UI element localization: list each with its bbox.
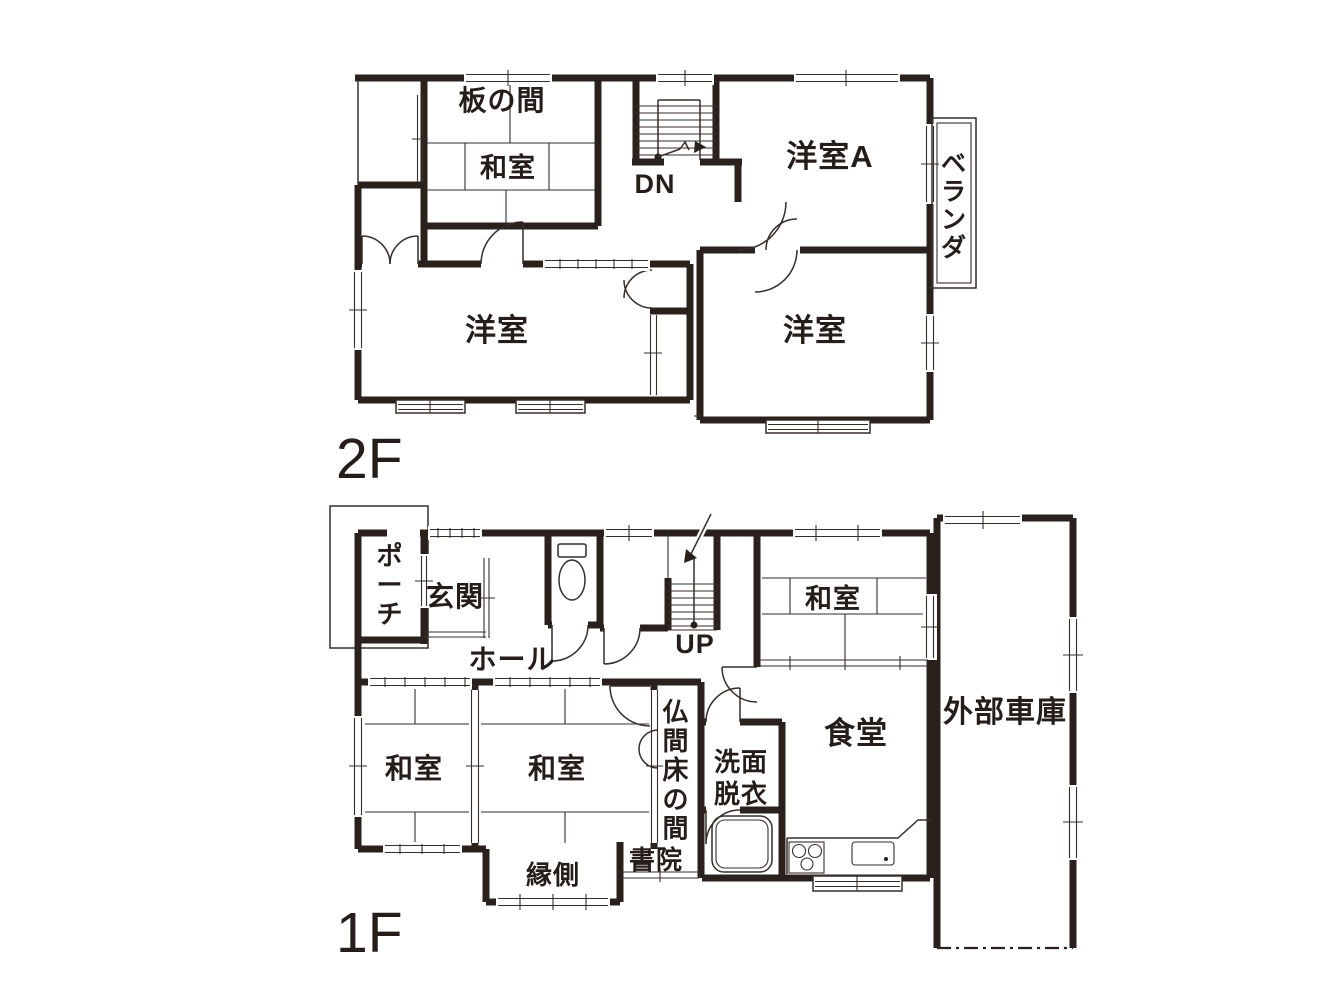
labels-2f: 板の間 和室 洋室A DN 洋室 洋室 ベランダ 2F xyxy=(336,85,967,491)
floor-plan-page: 板の間 和室 洋室A DN 洋室 洋室 ベランダ 2F xyxy=(0,0,1336,996)
fixtures-1f xyxy=(362,514,930,874)
room-label-hall-1f: ホール xyxy=(468,644,555,675)
stair-label-dn: DN xyxy=(635,169,676,199)
floor-2f: 板の間 和室 洋室A DN 洋室 洋室 ベランダ 2F xyxy=(336,70,976,491)
room-label-washroom-1: 洗面 xyxy=(714,747,768,777)
floor-label-2f: 2F xyxy=(336,427,403,491)
stairs-2f xyxy=(636,100,716,161)
kitchen-counter xyxy=(787,820,930,874)
room-label-dining: 食堂 xyxy=(824,716,888,751)
room-label-butsuma-tokonoma: 仏間床の間 xyxy=(662,697,689,843)
room-label-washitsu-sw1: 和室 xyxy=(385,752,443,784)
floor-1f: ポーチ 玄関 ホール UP 和室 食堂 外部車庫 洗面 脱衣 和室 和室 仏間床… xyxy=(330,506,1083,965)
floor-plan-drawing: 板の間 和室 洋室A DN 洋室 洋室 ベランダ 2F xyxy=(0,0,1336,996)
room-label-washitsu-sw2: 和室 xyxy=(528,752,586,784)
sink-icon xyxy=(852,842,894,865)
stair-label-up: UP xyxy=(675,629,715,659)
room-label-veranda: ベランダ xyxy=(941,150,967,262)
door-gap xyxy=(481,258,523,271)
floor-label-1f: 1F xyxy=(336,901,403,965)
room-label-youshitsu-a: 洋室A xyxy=(786,139,873,174)
room-label-washroom-2: 脱衣 xyxy=(714,779,768,809)
room-label-genkan: 玄関 xyxy=(426,580,484,612)
room-label-shoin: 書院 xyxy=(629,845,683,875)
room-label-engawa: 縁側 xyxy=(526,860,580,890)
room-label-youshitsu-west: 洋室 xyxy=(465,313,529,348)
room-label-garage: 外部車庫 xyxy=(943,695,1067,729)
room-label-washitsu-ne: 和室 xyxy=(805,583,861,614)
room-label-itanoma: 板の間 xyxy=(458,85,545,116)
room-label-youshitsu-east: 洋室 xyxy=(783,313,847,348)
toilet-icon xyxy=(558,544,586,600)
room-label-washitsu-2f: 和室 xyxy=(480,152,536,183)
bathtub-icon xyxy=(712,816,772,872)
walls-2f xyxy=(355,78,930,420)
windows-2f xyxy=(349,70,939,372)
room-label-porch: ポーチ xyxy=(376,541,403,629)
doors-1f xyxy=(552,625,757,844)
